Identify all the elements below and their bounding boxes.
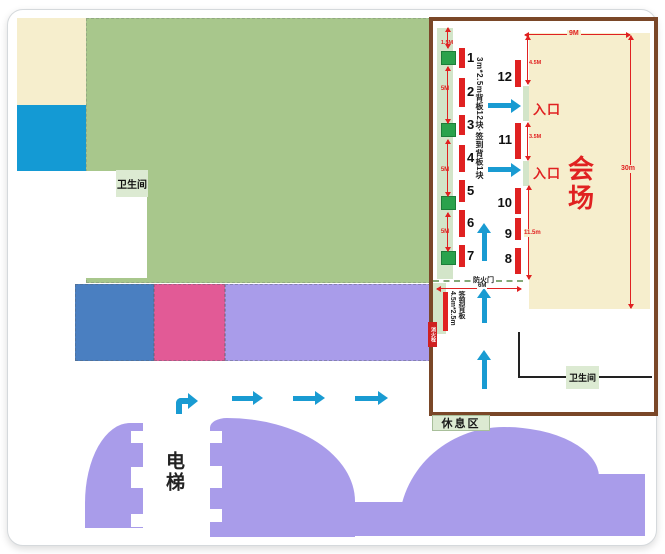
toilet-label-left: 卫生间 <box>116 170 148 197</box>
floor-plan-image: 卫生间 电梯 1.5M 5M 5M 5M <box>0 0 665 554</box>
flow-arrow-right-2 <box>293 391 325 405</box>
booth-bar-3 <box>459 115 465 135</box>
booth-bar-10 <box>515 188 521 214</box>
flow-arrow-right-1 <box>232 391 263 405</box>
backboard-count-note: 3m*2.5m背板12块·签到背板1块 <box>474 57 485 193</box>
fire-hydrant-tag: 消火栓 <box>428 322 437 347</box>
hall-height-dim-label: 30m <box>620 165 636 173</box>
booth-bar-7 <box>459 245 465 267</box>
fire-door-dim-label: 6M <box>477 283 487 289</box>
door-dim-label-mid: 3.5M <box>529 133 541 141</box>
booth-bar-2 <box>459 78 465 107</box>
corner-flow-arrow <box>172 389 200 414</box>
booth-marker-green-2 <box>441 123 456 137</box>
room-block-cream <box>17 18 86 105</box>
elevator-label: 电梯 <box>160 451 187 499</box>
entrance-arrow-1 <box>488 97 521 114</box>
corridor-notch <box>131 467 144 488</box>
corridor-notch <box>131 514 144 527</box>
door-dim-arrow-mid <box>527 123 528 160</box>
signin-board-bar <box>443 292 448 331</box>
signin-board-note-size: 4.5m*2.5m <box>449 291 456 335</box>
booth-bar-9 <box>515 218 521 240</box>
booth-number-10: 10 <box>495 196 512 210</box>
corridor-notch <box>210 466 222 488</box>
room-row-blue <box>75 284 154 361</box>
booth-bar-11 <box>515 123 521 159</box>
flow-arrow-up-booth <box>476 223 492 261</box>
left-dim-label-3: 5M <box>435 166 455 174</box>
expo-panel: 1.5M 5M 5M 5M 1 2 3 4 5 6 7 3m*2.5m背板12块… <box>429 17 658 416</box>
room-row-purple <box>225 284 431 361</box>
corridor-notch <box>210 509 222 522</box>
booth-number-8: 8 <box>495 252 512 266</box>
escalator-right-block <box>592 474 645 536</box>
left-dim-label-4: 5M <box>435 228 455 236</box>
booth-number-7: 7 <box>467 249 474 263</box>
booth-bar-4 <box>459 145 465 172</box>
corner-flow-arrow-head <box>188 393 198 409</box>
door-dim-label-bottom: 11.5m <box>524 229 541 237</box>
entrance-arrow-2 <box>488 161 521 178</box>
booth-number-9: 9 <box>495 227 512 241</box>
flow-arrow-right-3 <box>355 391 388 405</box>
room-row-pink <box>154 284 225 361</box>
rest-area-label: 休息区 <box>432 415 490 431</box>
booth-marker-green-1 <box>441 51 456 65</box>
booth-bar-8 <box>515 248 521 274</box>
booth-number-12: 12 <box>495 70 512 84</box>
corridor-notch <box>131 431 144 443</box>
toilet-label-panel: 卫生间 <box>566 366 599 389</box>
booth-bar-6 <box>459 210 465 237</box>
venue-hall-name: 会场 <box>566 155 596 213</box>
booth-number-11: 11 <box>495 133 512 147</box>
door-dim-label-top: 4.5M <box>529 59 541 67</box>
signin-board-note: 签到背板 4.5m*2.5m <box>449 291 466 335</box>
booth-bar-1 <box>459 48 465 68</box>
booth-marker-green-4 <box>441 251 456 265</box>
entrance-label-1: 入口 <box>533 99 561 118</box>
flow-arrow-up-1 <box>476 288 492 323</box>
booth-bar-5 <box>459 180 465 202</box>
left-dim-label-1: 1.5M <box>435 39 459 47</box>
flow-arrow-up-2 <box>476 350 492 389</box>
room-block-blue <box>17 105 86 171</box>
booth-number-6: 6 <box>467 216 474 230</box>
door-dim-arrow-top <box>527 36 528 84</box>
left-dim-label-2: 5M <box>435 85 455 93</box>
entrance-label-2: 入口 <box>533 163 561 182</box>
corridor-notch <box>210 431 222 443</box>
hall-width-dim-label: 9M <box>567 30 581 38</box>
booth-bar-12 <box>515 60 521 87</box>
left-dim-arrow-2 <box>447 67 448 123</box>
signin-board-note-name: 签到背板 <box>456 291 466 335</box>
booth-marker-green-3 <box>441 196 456 210</box>
toilet-wall-line-v <box>518 332 520 378</box>
